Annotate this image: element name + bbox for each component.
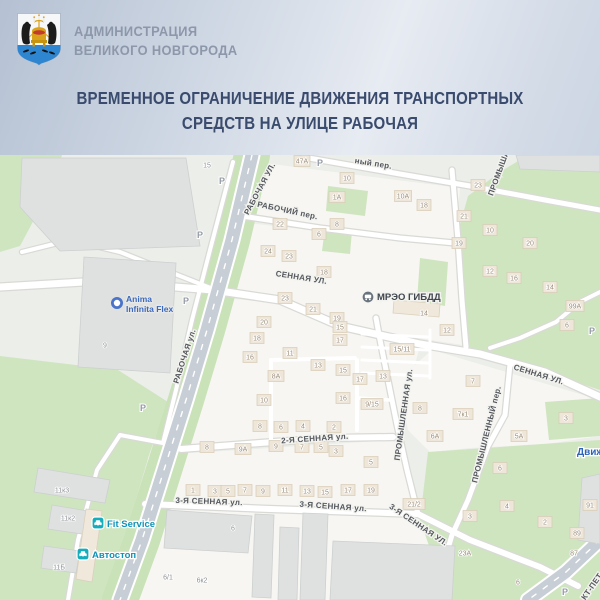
parking-icon: Р <box>589 326 595 336</box>
house-number: 21/2 <box>407 502 421 509</box>
house-number: 1 <box>191 488 195 495</box>
house-number: 19 <box>367 488 375 495</box>
house-number: 12 <box>486 269 494 276</box>
house-number: 11 <box>281 488 288 495</box>
house-number: 2 <box>332 425 336 432</box>
house-number: 9/15 <box>365 402 379 409</box>
house-number: 11к3 <box>55 488 69 495</box>
house-number: 9 <box>261 489 265 496</box>
house-number: 7 <box>300 445 304 452</box>
house-number: 5 <box>319 445 323 452</box>
house-number: 9 <box>274 444 278 451</box>
house-number: 4 <box>301 424 305 431</box>
house-number: 20 <box>260 320 268 327</box>
org-name-line1: АДМИНИСТРАЦИЯ <box>74 22 237 41</box>
house-number: 3 <box>468 514 472 521</box>
svg-text:Anima: Anima <box>126 294 152 304</box>
house-number: 19 <box>455 241 463 248</box>
house-number: 15/11 <box>394 347 411 354</box>
house-number: 1А <box>333 195 342 202</box>
house-number: 6 <box>279 425 283 432</box>
house-number: 10А <box>397 194 410 201</box>
house-number: 91 <box>586 503 594 510</box>
parking-icon: Р <box>140 403 146 413</box>
header: АДМИНИСТРАЦИЯ ВЕЛИКОГО НОВГОРОДА <box>16 12 246 66</box>
post-title-line1: ВРЕМЕННОЕ ОГРАНИЧЕНИЕ ДВИЖЕНИЯ ТРАНСПОРТ… <box>42 86 558 111</box>
house-number: 5А <box>515 434 524 441</box>
house-number: 6А <box>431 434 440 441</box>
house-number: 6 <box>498 466 502 473</box>
post-title-line2: СРЕДСТВ НА УЛИЦЕ РАБОЧАЯ <box>42 111 558 136</box>
map-canvas[interactable]: 1547А101А10А18232110192012161499А6228624… <box>0 155 600 600</box>
house-number: 99А <box>569 304 582 311</box>
house-number: 6 <box>516 580 520 587</box>
house-number: 23 <box>285 254 293 261</box>
house-number: 17 <box>336 338 344 345</box>
fitness-icon <box>112 298 121 307</box>
house-number: 6 <box>317 232 321 239</box>
house-number: 14 <box>420 311 428 318</box>
house-number: 18 <box>420 203 428 210</box>
svg-text:Fit Service: Fit Service <box>107 519 155 530</box>
poi-mreo-label: МРЭО ГИБДД <box>377 292 441 303</box>
house-number: 11 <box>286 351 293 358</box>
org-name: АДМИНИСТРАЦИЯ ВЕЛИКОГО НОВГОРОДА <box>74 22 237 60</box>
house-number: 3 <box>213 489 217 496</box>
parking-icon: Р <box>183 296 189 306</box>
map[interactable]: 1547А101А10А18232110192012161499А6228624… <box>0 155 600 600</box>
parking-icon: Р <box>562 587 568 597</box>
poi-fit-service[interactable]: Fit Service <box>92 517 155 530</box>
house-number: 8 <box>205 445 209 452</box>
house-number: 9А <box>239 447 248 454</box>
house-number: 24 <box>264 249 272 256</box>
house-number: 8 <box>335 222 339 229</box>
svg-text:Движ: Движ <box>577 447 600 458</box>
coat-of-arms-icon <box>16 12 62 66</box>
house-number: 13 <box>314 363 322 370</box>
house-number: 10 <box>260 398 268 405</box>
house-number: 8А <box>272 374 281 381</box>
house-number: 3 <box>564 416 568 423</box>
house-number: 22 <box>276 222 284 229</box>
parking-icon: Р <box>197 230 203 240</box>
house-number: 10 <box>486 228 494 235</box>
house-number: 87 <box>570 551 578 558</box>
house-number: 11к2 <box>61 516 75 523</box>
house-number: 9 <box>103 343 107 350</box>
house-number: 5 <box>369 460 373 467</box>
novgorod-coat-of-arms <box>16 12 62 66</box>
org-name-line2: ВЕЛИКОГО НОВГОРОДА <box>74 41 237 60</box>
house-number: 23А <box>459 551 472 558</box>
house-number: 16 <box>246 355 254 362</box>
house-number: 3 <box>334 449 338 456</box>
house-number: 7к1 <box>458 412 469 419</box>
house-number: 14 <box>546 285 554 292</box>
house-number: 15 <box>203 163 211 170</box>
house-number: 15 <box>321 490 329 497</box>
house-number: 5 <box>226 489 230 496</box>
house-number: 18 <box>253 336 261 343</box>
house-number: 16 <box>339 396 347 403</box>
house-number: 6 <box>565 323 569 330</box>
house-number: 11Б <box>53 565 65 572</box>
house-number: 23 <box>474 183 482 190</box>
house-number: 4 <box>505 504 509 511</box>
post-title: ВРЕМЕННОЕ ОГРАНИЧЕНИЕ ДВИЖЕНИЯ ТРАНСПОРТ… <box>42 86 558 136</box>
house-number: 6к2 <box>197 578 208 585</box>
house-number: 20 <box>526 241 534 248</box>
house-number: 12 <box>443 328 451 335</box>
house-number: 8 <box>258 424 262 431</box>
parking-icon: Р <box>219 176 225 186</box>
house-number: 17 <box>356 377 364 384</box>
house-number: 6 <box>231 526 235 533</box>
svg-text:Infinita Flex: Infinita Flex <box>126 304 174 314</box>
house-number: 15 <box>339 368 347 375</box>
house-number: 6/1 <box>163 575 173 582</box>
house-number: 17 <box>344 488 352 495</box>
social-post: АДМИНИСТРАЦИЯ ВЕЛИКОГО НОВГОРОДА ВРЕМЕНН… <box>0 0 600 600</box>
poi-avtostop[interactable]: Автостоп <box>77 548 136 561</box>
house-number: 89 <box>573 531 581 538</box>
parking-icon: Р <box>317 158 323 168</box>
poi-dvizhenie[interactable]: Движ <box>577 447 600 458</box>
house-number: 47А <box>296 159 309 166</box>
house-number: 7 <box>471 379 475 386</box>
house-number: 8 <box>418 406 422 413</box>
house-number: 13 <box>303 489 311 496</box>
house-number: 21 <box>460 214 468 221</box>
house-number: 2 <box>543 520 547 527</box>
house-number: 23 <box>281 296 289 303</box>
house-number: 15 <box>336 325 344 332</box>
house-number: 16 <box>510 276 518 283</box>
house-number: 10 <box>343 176 351 183</box>
house-number: 13 <box>379 374 387 381</box>
svg-text:Автостоп: Автостоп <box>92 550 136 561</box>
house-number: 21 <box>309 307 317 314</box>
house-number: 7 <box>243 488 247 495</box>
